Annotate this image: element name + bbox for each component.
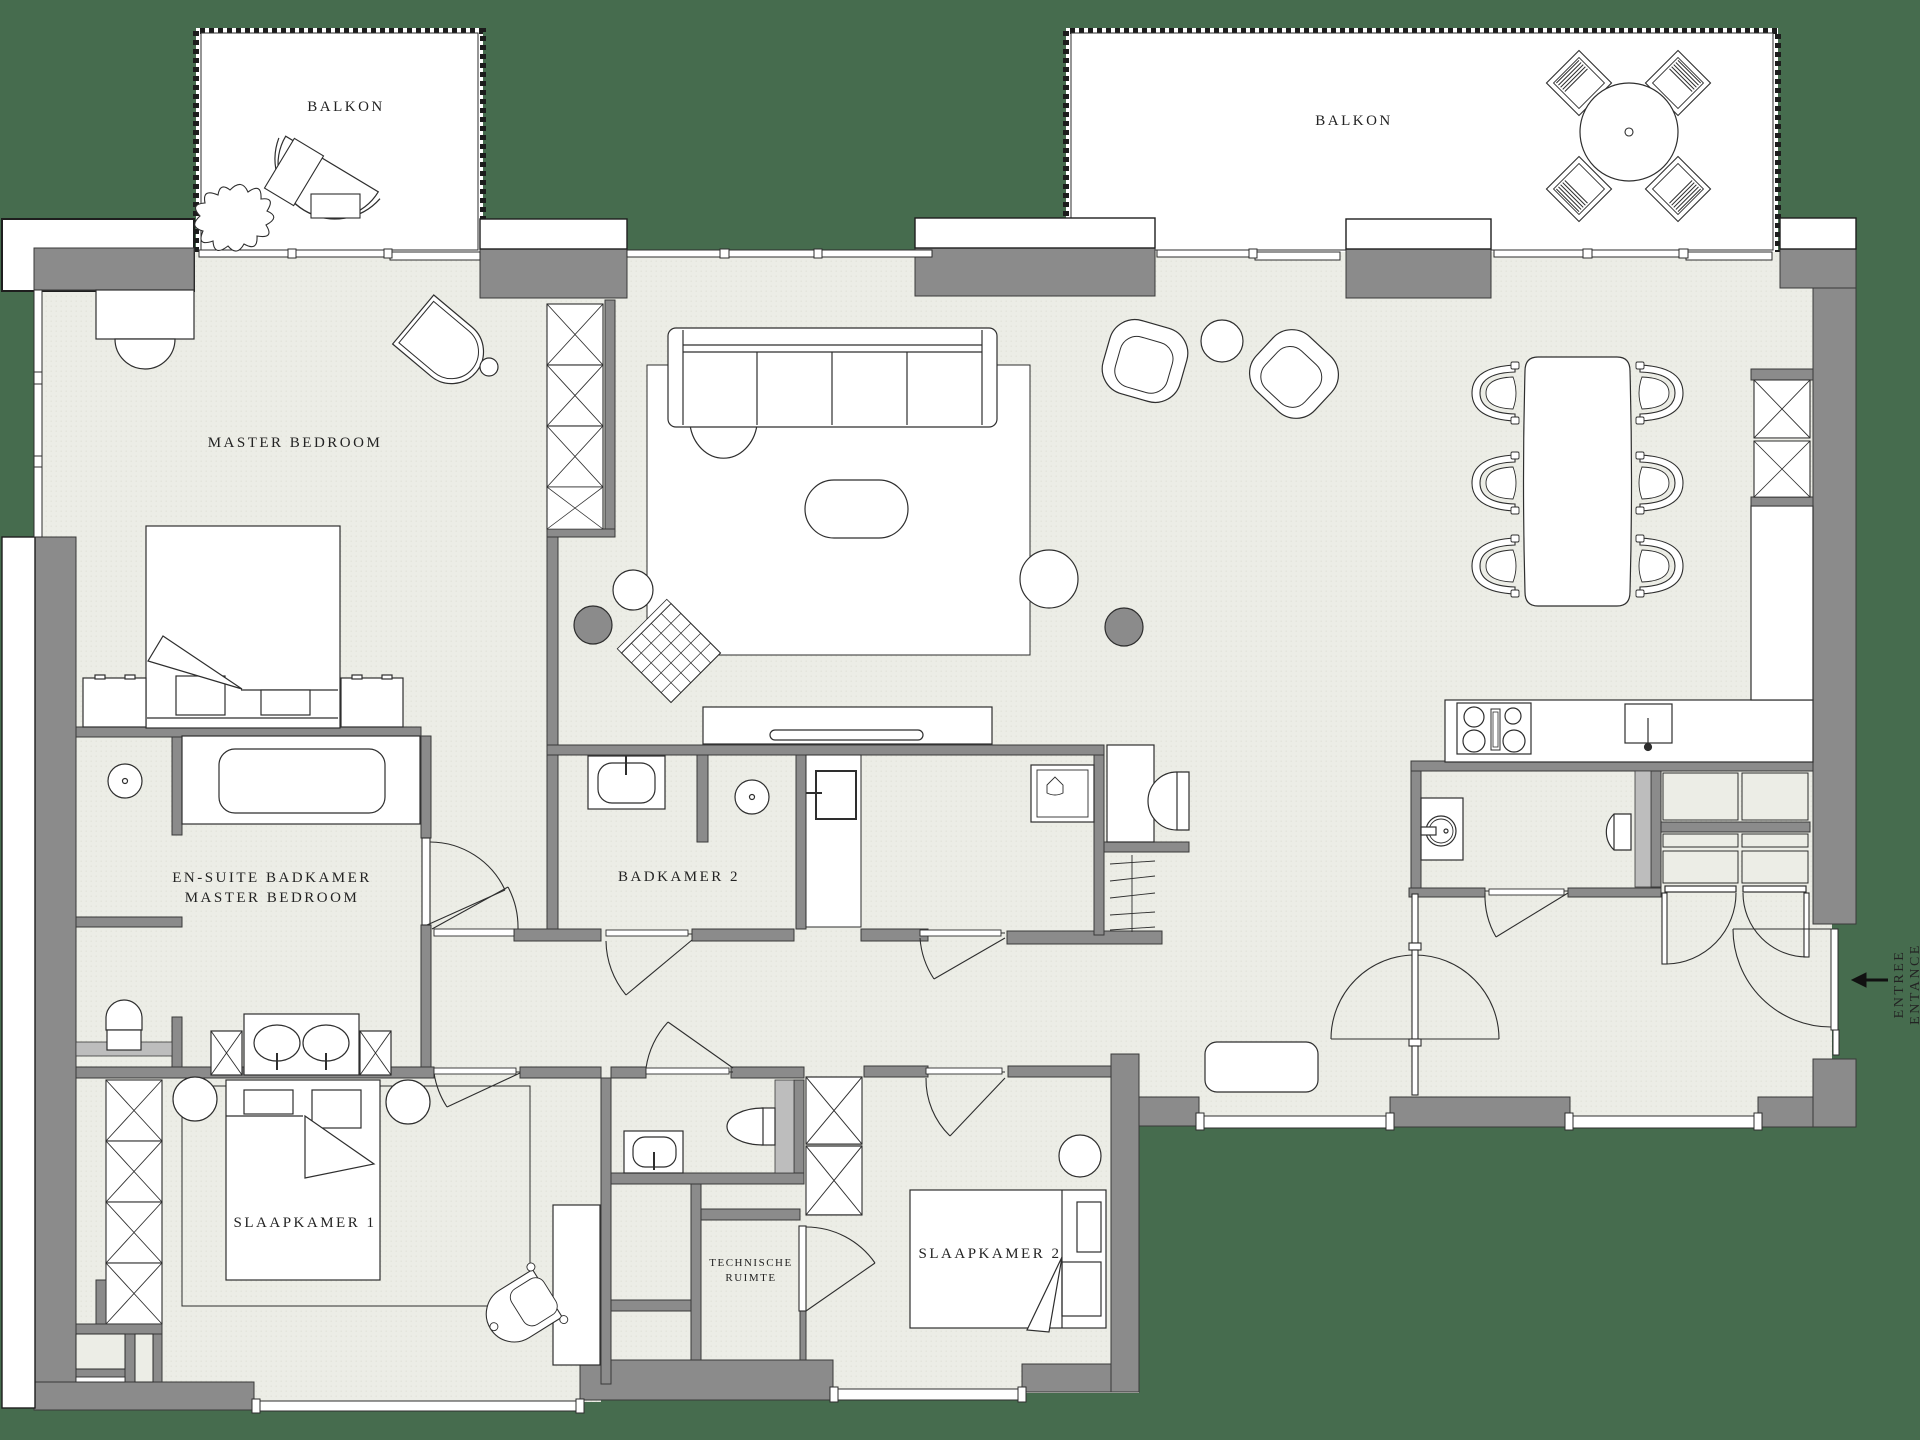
svg-text:MASTER BEDROOM: MASTER BEDROOM xyxy=(208,435,383,451)
svg-text:BALKON: BALKON xyxy=(307,99,385,115)
svg-text:MASTER BEDROOM: MASTER BEDROOM xyxy=(185,890,360,906)
svg-text:TECHNISCHE: TECHNISCHE xyxy=(709,1257,792,1269)
svg-text:SLAAPKAMER 2: SLAAPKAMER 2 xyxy=(919,1246,1062,1262)
svg-text:BALKON: BALKON xyxy=(1315,113,1393,129)
svg-text:RUIMTE: RUIMTE xyxy=(725,1272,776,1284)
svg-text:SLAAPKAMER 1: SLAAPKAMER 1 xyxy=(234,1215,377,1231)
svg-text:ENTANCE: ENTANCE xyxy=(1908,943,1920,1025)
svg-text:BADKAMER 2: BADKAMER 2 xyxy=(618,869,740,885)
svg-text:EN-SUITE BADKAMER: EN-SUITE BADKAMER xyxy=(172,870,372,886)
svg-text:ENTREE: ENTREE xyxy=(1892,950,1907,1019)
